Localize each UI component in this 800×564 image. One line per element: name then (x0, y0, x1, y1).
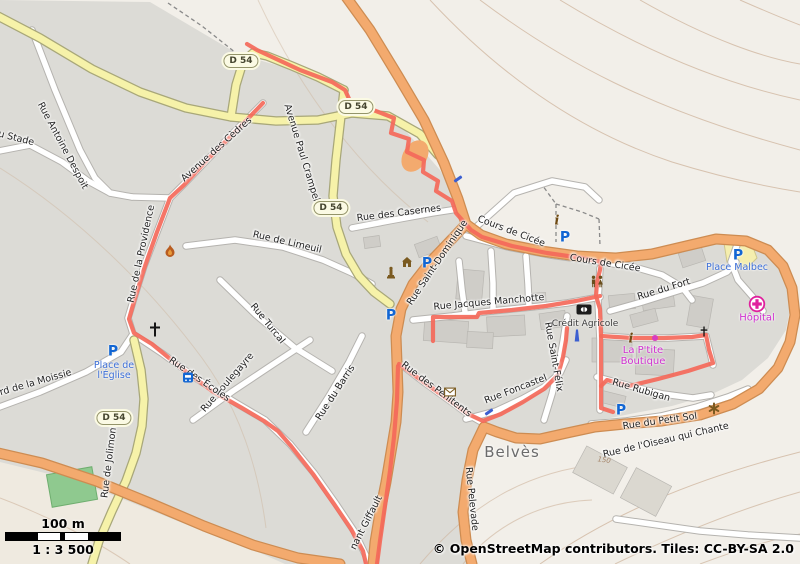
street-label-avenue-des-cedres: Avenue des Cèdres (180, 116, 255, 185)
marker-dash-icon (454, 178, 463, 181)
street-label-avenue-paul-crampel: Avenue Paul Crampel (281, 103, 320, 203)
scale-bar-graphic (5, 532, 121, 541)
map-overlay: Rue Antoine Despoitu StadeAvenue des Cèd… (0, 0, 800, 564)
street-label-ard-de-la-moissie: ard de la Moissie (0, 368, 73, 400)
parking-icon: P (616, 400, 626, 419)
scale-segment (65, 533, 88, 540)
parking-icon: P (108, 341, 118, 360)
street-label-rue-saint-dominique: Rue Saint-Dominique (406, 219, 471, 308)
info-icon: i (555, 210, 560, 229)
street-label-rue-des-ecoles: Rue des Écoles (167, 356, 232, 404)
street-label-rue-saint-felix: Rue Saint-Félix (542, 321, 564, 392)
street-label-rue-de-l-oiseau-qui-chante: Rue de l'Oiseau qui Chante (602, 422, 730, 461)
place-label-belves: Belvès (484, 444, 540, 460)
small-cross-icon (700, 322, 708, 341)
street-label-nant-giffault: nant Giffault (349, 494, 385, 552)
scale-distance-label: 100 m (4, 516, 122, 531)
info-icon: i (629, 328, 634, 347)
street-label-rue-des-casernes: Rue des Casernes (356, 204, 441, 224)
street-label-rue-turcal: Rue Turcal (248, 302, 287, 346)
scale-bar: 100 m 1 : 3 500 (4, 516, 122, 557)
parking-icon: P (422, 253, 432, 272)
scale-segment (88, 533, 120, 540)
poi-label-place-malbec: Place Malbec (706, 263, 768, 273)
poi-label-credit-agricole: Crédit Agricole (552, 320, 619, 330)
street-label-rue-foncastel: Rue Foncastel (483, 373, 549, 406)
street-label-rue-du-petit-sol: Rue du Petit Sol (622, 412, 698, 433)
route-badge-d-54: D 54 (223, 54, 258, 68)
bus-stop-icon (183, 368, 193, 387)
street-label-rue-de-limeuil: Rue de Limeuil (252, 230, 323, 256)
town-hall-icon (401, 253, 413, 272)
bank-icon (577, 300, 592, 319)
street-label-cours-de-cicee: Cours de Cicée (569, 253, 641, 274)
street-label-rue-de-la-providence: Rue de la Providence (127, 204, 158, 304)
parking-icon: P (733, 245, 743, 264)
parking-icon: P (560, 227, 570, 246)
route-badge-d-54: D 54 (313, 201, 348, 215)
poi-label-hopital: Hôpital (739, 314, 775, 325)
street-label-rue-antoine-despoit: Rue Antoine Despoit (35, 101, 90, 191)
scale-segment (6, 533, 38, 540)
post-box-icon (444, 382, 456, 401)
hospital-icon (749, 296, 766, 317)
monument-icon (385, 264, 397, 283)
poi-label-150: 150 (597, 456, 611, 465)
flame-icon (165, 243, 176, 262)
street-label-rue-jacques-manchotte: Rue Jacques Manchotte (433, 293, 545, 313)
street-label-cours-de-cicee: Cours de Cicée (476, 214, 546, 249)
parking-icon: P (386, 305, 396, 324)
street-label-u-stade: u Stade (0, 130, 35, 149)
poi-label-la-p-tite-boutique: La P'tite Boutique (621, 346, 666, 368)
marker-dash-icon (485, 411, 494, 414)
street-label-rue-du-fort: Rue du Fort (636, 277, 691, 303)
street-label-rue-boulegayre: Rue Boulegayre (200, 351, 257, 414)
mill-icon (708, 400, 720, 419)
street-label-rue-du-barris: Rue du Barris (314, 363, 357, 422)
street-label-rue-de-jolimont: Rue de Jolimont (100, 423, 119, 498)
route-badge-d-54: D 54 (96, 411, 131, 425)
toilets-icon (590, 273, 605, 292)
blue-monument-icon (573, 327, 581, 346)
poi-label-place-de-l-eglise: Place de l'Église (94, 361, 134, 382)
street-label-rue-rubigan: Rue Rubigan (611, 378, 671, 404)
church-icon (149, 322, 161, 341)
street-label-rue-des-penitents: Rue des Pénitents (399, 360, 473, 419)
shop-dot-icon (652, 335, 658, 341)
attribution: © OpenStreetMap contributors. Tiles: CC-… (433, 541, 794, 556)
map-canvas[interactable]: Rue Antoine Despoitu StadeAvenue des Cèd… (0, 0, 800, 564)
route-badge-d-54: D 54 (338, 100, 373, 114)
scale-segment (38, 533, 60, 540)
street-label-rue-pelevade: Rue Pelevade (463, 467, 480, 532)
scale-ratio-label: 1 : 3 500 (4, 542, 122, 557)
